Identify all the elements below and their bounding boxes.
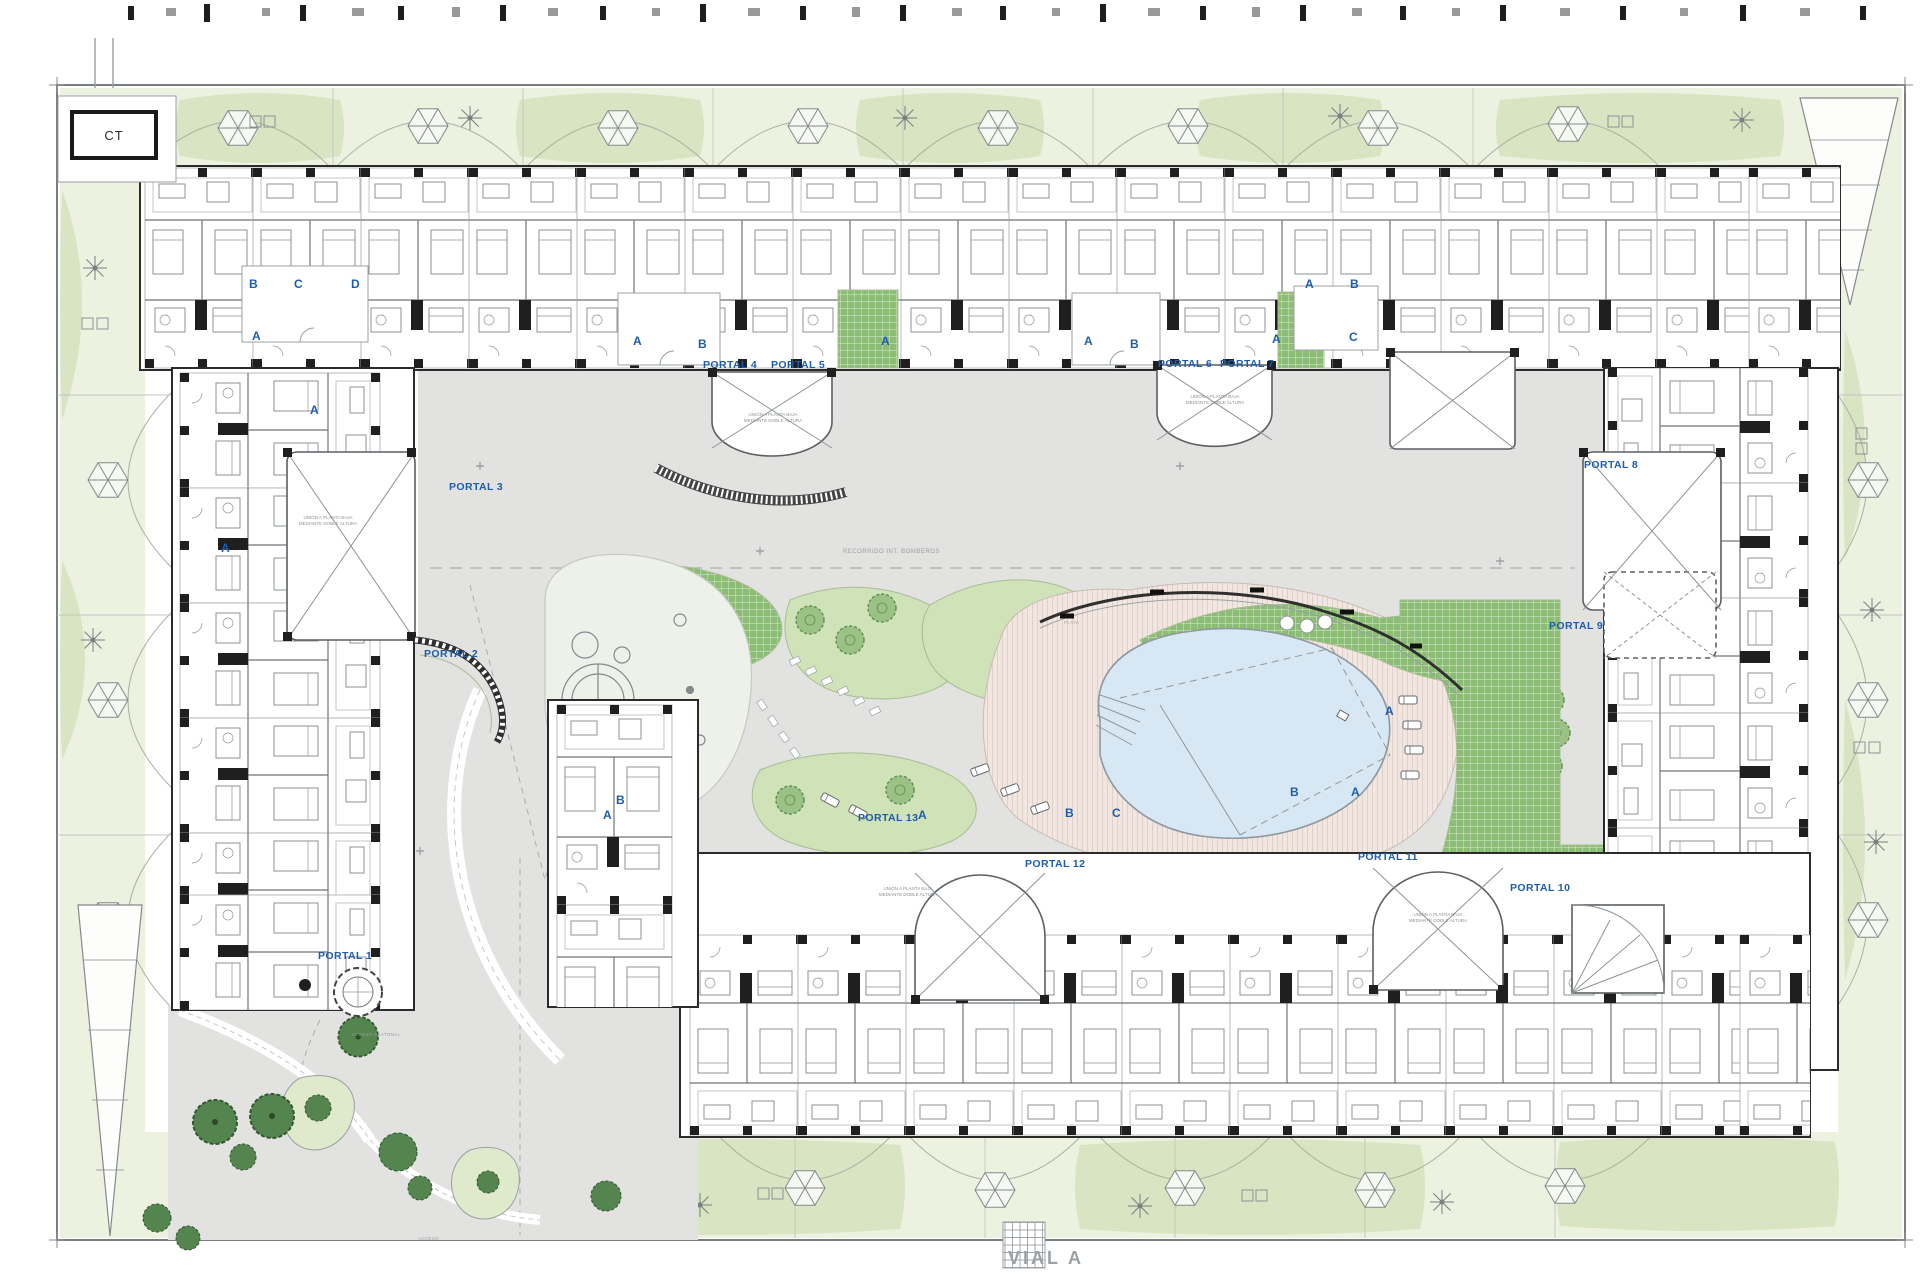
transformer-enclosure [58,96,176,182]
building-bottom-row [680,853,1855,1137]
site-plan-sheet: CT PORTAL 1 PORTAL 2 PORTAL 3 PORTAL 4 P… [0,0,1920,1280]
building-top-row [140,166,1864,370]
site-plan-drawing [0,0,1920,1280]
crosswalk [1003,1222,1045,1268]
